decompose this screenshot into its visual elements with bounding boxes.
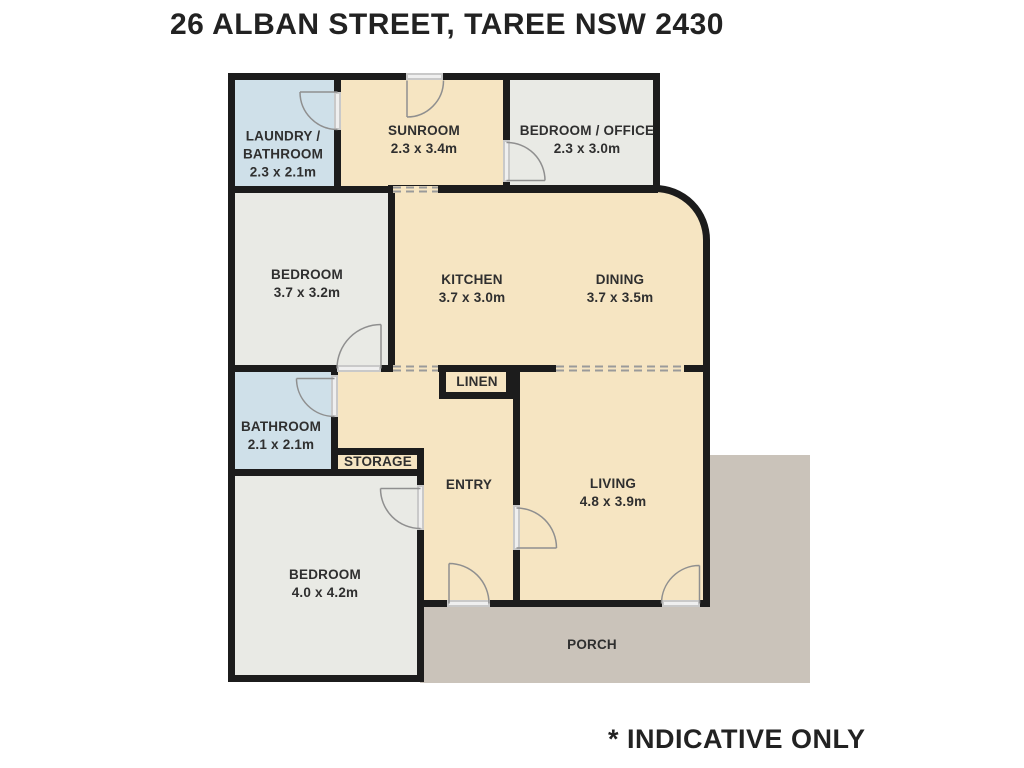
room-label-laundry-bathroom: LAUNDRY / BATHROOM 2.3 x 2.1m <box>243 128 323 183</box>
wall-entry-left <box>417 448 424 682</box>
sunroom-kitchen-opening <box>393 186 438 193</box>
room-label-porch: PORCH <box>567 636 617 654</box>
room-label-bedroom2: BEDROOM 4.0 x 4.2m <box>289 566 361 602</box>
wall-toprow-bottom <box>228 186 658 193</box>
bathroom-door-sill <box>331 375 338 417</box>
wall-linen-dining <box>516 365 556 372</box>
bedroom2-door-sill <box>417 485 424 530</box>
laundry-door-sill <box>334 92 341 130</box>
room-label-dining: DINING 3.7 x 3.5m <box>587 271 654 307</box>
bedroom1-door-sill <box>337 365 381 372</box>
room-label-bathroom: BATHROOM 2.1 x 2.1m <box>241 418 321 454</box>
living-door-sill <box>513 505 520 550</box>
room-label-entry: ENTRY <box>446 476 492 494</box>
room-label-linen: LINEN <box>456 373 498 391</box>
sunroom-door-sill <box>406 73 443 80</box>
indicative-only-note: * INDICATIVE ONLY <box>608 724 866 755</box>
wall-linen-bottom <box>439 392 513 399</box>
room-label-bedroom1: BEDROOM 3.7 x 3.2m <box>271 266 343 302</box>
porch-door-sill <box>662 600 700 607</box>
room-label-living: LIVING 4.8 x 3.9m <box>580 475 647 511</box>
office-door-sill <box>503 140 510 182</box>
dining-living-opening <box>556 365 684 372</box>
wall-bedroom2-bottom <box>228 675 424 682</box>
room-label-kitchen: KITCHEN 3.7 x 3.0m <box>439 271 506 307</box>
room-label-storage: STORAGE <box>344 453 412 471</box>
entry-door-sill <box>447 600 490 607</box>
room-label-bedroom-office: BEDROOM / OFFICE 2.3 x 3.0m <box>520 122 654 158</box>
wall-left-outer <box>228 73 235 682</box>
room-label-sunroom: SUNROOM 2.3 x 3.4m <box>388 122 460 158</box>
floorplan-page: 26 ALBAN STREET, TAREE NSW 2430 <box>0 0 1024 768</box>
kitchen-hall-opening <box>393 365 438 372</box>
wall-laundry-sunroom <box>334 73 341 192</box>
wall-dining-corner <box>684 365 710 372</box>
floor-plan <box>0 0 1024 768</box>
wall-top-outer <box>228 73 660 80</box>
